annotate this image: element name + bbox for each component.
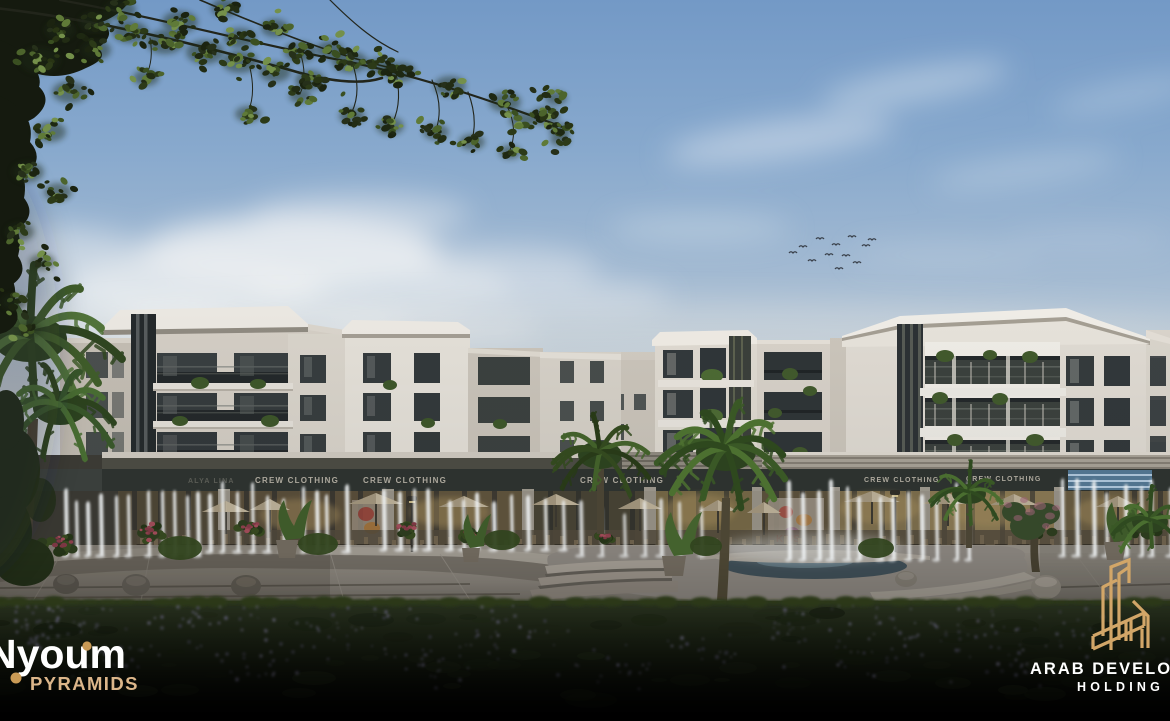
svg-text:Nyoum: Nyoum (0, 631, 126, 677)
svg-text:CREW CLOTHING: CREW CLOTHING (255, 476, 339, 485)
svg-text:ARAB DEVELOPER: ARAB DEVELOPER (1030, 660, 1170, 678)
svg-text:CREW CLOTHING: CREW CLOTHING (363, 476, 447, 485)
svg-text:PYRAMIDS: PYRAMIDS (30, 673, 139, 694)
svg-text:CREW CLOTHING: CREW CLOTHING (864, 477, 939, 484)
svg-text:HOLDING: HOLDING (1077, 680, 1164, 694)
svg-text:ALYA LINA: ALYA LINA (188, 478, 235, 485)
